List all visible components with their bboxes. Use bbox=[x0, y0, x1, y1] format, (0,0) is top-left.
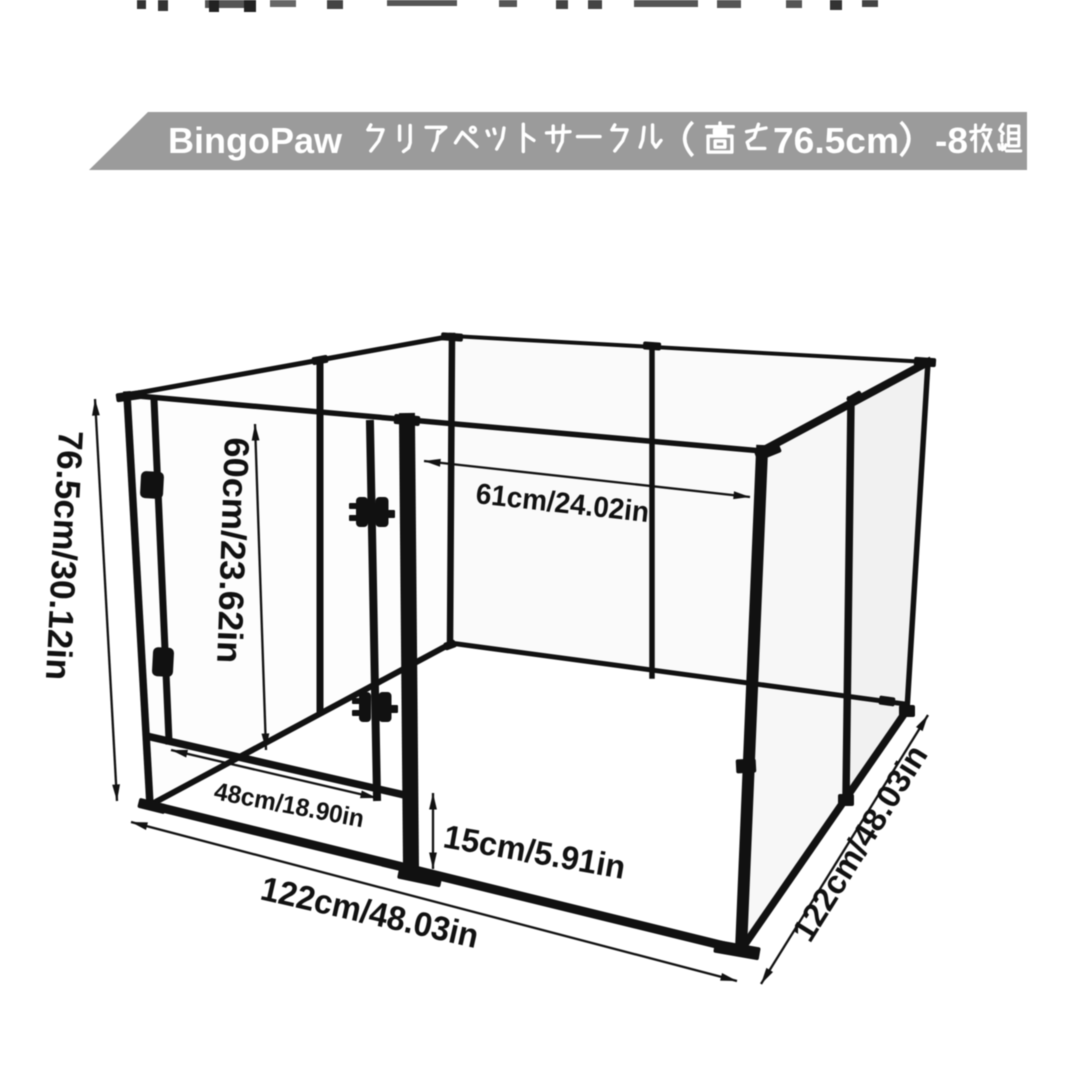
svg-text:76.5cm: 76.5cm bbox=[773, 120, 899, 161]
svg-text:BingoPaw: BingoPaw bbox=[168, 120, 343, 161]
svg-text:-8: -8 bbox=[935, 120, 968, 161]
svg-text:60cm/23.62in: 60cm/23.62in bbox=[209, 437, 256, 664]
